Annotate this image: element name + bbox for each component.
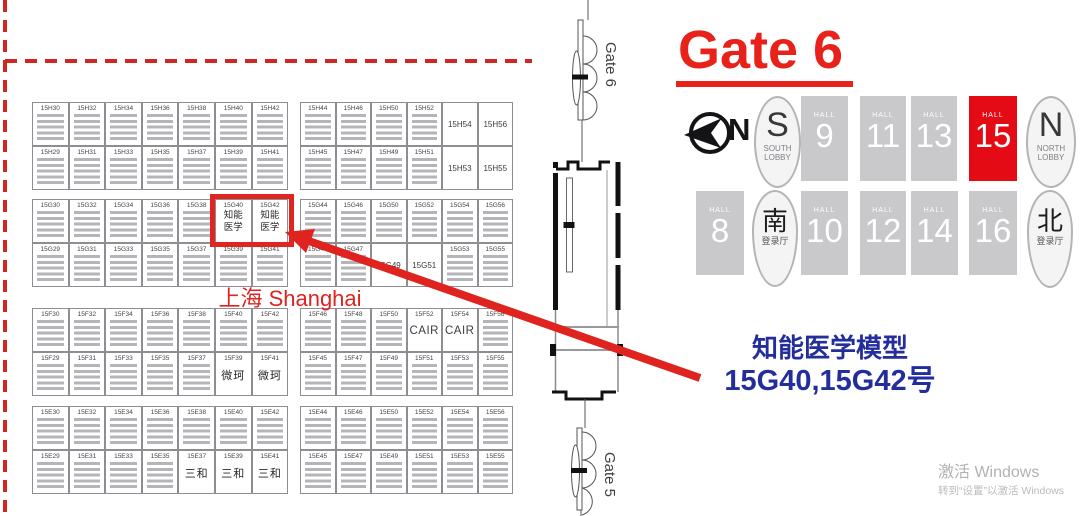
shanghai-label: 上海 Shanghai bbox=[140, 281, 440, 313]
booth-cell: 15E41三和 bbox=[252, 450, 289, 494]
south-reg-char: 南 bbox=[754, 208, 796, 234]
gate-5-door-label: Gate 5 bbox=[601, 452, 618, 497]
booth-cell: 15F31 bbox=[69, 352, 106, 396]
booth-cell: 15H52 bbox=[407, 102, 443, 146]
booth-cell: 15H39 bbox=[215, 146, 252, 190]
booth-cell: 15E49 bbox=[371, 450, 407, 494]
booth-cell: 15G29 bbox=[32, 243, 69, 287]
booth-cell: 15G52 bbox=[407, 199, 443, 243]
booth-cell: 15F32 bbox=[69, 308, 106, 352]
watermark-line2: 转到“设置”以激活 Windows bbox=[938, 484, 1064, 499]
booth-cell: 15E55 bbox=[478, 450, 514, 494]
hall-number: 12 bbox=[860, 214, 906, 249]
hall-9: HALL 9 bbox=[801, 96, 848, 181]
south-lobby-letter: S bbox=[756, 108, 799, 142]
booth-cell: 15G53 bbox=[442, 243, 478, 287]
hall-number: 16 bbox=[969, 214, 1017, 249]
booth-cell: 15H32 bbox=[69, 102, 106, 146]
gate-6-door-label: Gate 6 bbox=[602, 42, 619, 87]
north-lobby-text: NORTH LOBBY bbox=[1031, 144, 1071, 162]
booth-cell: 15F50 bbox=[371, 308, 407, 352]
booth-cell: 15E38 bbox=[178, 406, 215, 450]
booth-cell: 15F33 bbox=[105, 352, 142, 396]
hall-number: 8 bbox=[696, 214, 744, 249]
booth-cell: 15E47 bbox=[336, 450, 372, 494]
booth-cell: 15G36 bbox=[142, 199, 179, 243]
booth-cell: 15E36 bbox=[142, 406, 179, 450]
booth-cell: 15E54 bbox=[442, 406, 478, 450]
south-registration-hall: 南 登录厅 bbox=[752, 190, 798, 287]
annotation-booth-numbers: 15G40,15G42号 bbox=[680, 364, 980, 399]
booth-cell: 15F30 bbox=[32, 308, 69, 352]
booth-cell: 15F34 bbox=[105, 308, 142, 352]
booth-cell: 15F39微珂 bbox=[215, 352, 252, 396]
corridor-walls bbox=[550, 0, 623, 516]
booth-cell: 15H51 bbox=[407, 146, 443, 190]
booth-cell: 15F47 bbox=[336, 352, 372, 396]
booth-cell: 15G31 bbox=[69, 243, 106, 287]
south-lobby-text: SOUTH LOBBY bbox=[758, 144, 798, 162]
booth-cell: 15H31 bbox=[69, 146, 106, 190]
booth-cell: 15G46 bbox=[336, 199, 372, 243]
booth-cell: 15H35 bbox=[142, 146, 179, 190]
hall-number: 10 bbox=[801, 214, 848, 249]
booth-cell: 15H55 bbox=[478, 146, 514, 190]
booth-cell: 15E50 bbox=[371, 406, 407, 450]
booth-cell: 15E51 bbox=[407, 450, 443, 494]
booth-cell: 15E29 bbox=[32, 450, 69, 494]
booth-cell: 15H53 bbox=[442, 146, 478, 190]
booth-cell: 15E53 bbox=[442, 450, 478, 494]
booth-cell: 15F52CAIR bbox=[407, 308, 443, 352]
booth-cell: 15H42 bbox=[252, 102, 289, 146]
booth-cell: 15E33 bbox=[105, 450, 142, 494]
booth-cell: 15F29 bbox=[32, 352, 69, 396]
hall-number: 14 bbox=[911, 214, 958, 249]
booth-cell: 15G34 bbox=[105, 199, 142, 243]
booth-cell: 15H41 bbox=[252, 146, 289, 190]
booth-cell: 15E31 bbox=[69, 450, 106, 494]
south-reg-text: 登录厅 bbox=[755, 236, 795, 246]
booth-cell: 15F53 bbox=[442, 352, 478, 396]
hall-number: 15 bbox=[969, 119, 1017, 154]
compass-n-label: N bbox=[728, 112, 750, 148]
exhibition-floor-plan: Gate 6 Gate 5 15H3015H3215H3415H3615H381… bbox=[0, 0, 1080, 516]
booth-cell: 15E46 bbox=[336, 406, 372, 450]
hall-16: HALL 16 bbox=[969, 191, 1017, 275]
booth-cell: 15H44 bbox=[300, 102, 336, 146]
booth-cell: 15E52 bbox=[407, 406, 443, 450]
north-lobby-letter: N bbox=[1028, 108, 1074, 142]
booth-cell: 15F51 bbox=[407, 352, 443, 396]
hall-14: HALL 14 bbox=[911, 191, 958, 275]
booth-cell: 15F48 bbox=[336, 308, 372, 352]
hall-11: HALL 11 bbox=[860, 96, 906, 181]
booth-cell: 15F45 bbox=[300, 352, 336, 396]
hall-13: HALL 13 bbox=[911, 96, 957, 181]
booth-cell: 15E37三和 bbox=[178, 450, 215, 494]
booth-cell: 15H49 bbox=[371, 146, 407, 190]
north-reg-char: 北 bbox=[1029, 208, 1071, 234]
booth-cell: 15H45 bbox=[300, 146, 336, 190]
booth-cell: 15F36 bbox=[142, 308, 179, 352]
booth-cell: 15E45 bbox=[300, 450, 336, 494]
booth-cell: 15E40 bbox=[215, 406, 252, 450]
hall-8: HALL 8 bbox=[696, 191, 744, 275]
booth-cell: 15G50 bbox=[371, 199, 407, 243]
watermark-line1: 激活 Windows bbox=[938, 463, 1064, 484]
booth-cell: 15F40 bbox=[215, 308, 252, 352]
hall-15-highlighted: HALL 15 bbox=[969, 96, 1017, 181]
booth-cell: 15H29 bbox=[32, 146, 69, 190]
hall-number: 9 bbox=[801, 119, 848, 154]
booth-cell: 15G44 bbox=[300, 199, 336, 243]
north-reg-text: 登录厅 bbox=[1030, 236, 1070, 246]
booth-cell: 15G32 bbox=[69, 199, 106, 243]
booth-cell: 15H33 bbox=[105, 146, 142, 190]
booth-cell: 15H36 bbox=[142, 102, 179, 146]
hall-number: 11 bbox=[860, 119, 906, 154]
booth-cell: 15F56 bbox=[478, 308, 514, 352]
booth-cell: 15H37 bbox=[178, 146, 215, 190]
booth-cell: 15F54CAIR bbox=[442, 308, 478, 352]
booth-cell: 15F37 bbox=[178, 352, 215, 396]
booth-cell: 15F41微珂 bbox=[252, 352, 289, 396]
booth-cell: 15F55 bbox=[478, 352, 514, 396]
booth-cell: 15F35 bbox=[142, 352, 179, 396]
booth-cell: 15F38 bbox=[178, 308, 215, 352]
booth-cell: 15H47 bbox=[336, 146, 372, 190]
north-lobby: N NORTH LOBBY bbox=[1026, 96, 1076, 188]
booth-cell: 15H34 bbox=[105, 102, 142, 146]
gate6-title: Gate 6 bbox=[676, 22, 853, 87]
booth-cell: 15G56 bbox=[478, 199, 514, 243]
hall-12: HALL 12 bbox=[860, 191, 906, 275]
booth-cell: 15G55 bbox=[478, 243, 514, 287]
booth-cell: 15G33 bbox=[105, 243, 142, 287]
windows-watermark: 激活 Windows 转到“设置”以激活 Windows bbox=[938, 463, 1064, 498]
booth-cell: 15E35 bbox=[142, 450, 179, 494]
booth-cell: 15E56 bbox=[478, 406, 514, 450]
booth-cell: 15E34 bbox=[105, 406, 142, 450]
red-highlight-box bbox=[210, 194, 294, 247]
booth-cell: 15H54 bbox=[442, 102, 478, 146]
booth-cell: 15E39三和 bbox=[215, 450, 252, 494]
booth-cell: 15H50 bbox=[371, 102, 407, 146]
booth-cell: 15F49 bbox=[371, 352, 407, 396]
hall-10: HALL 10 bbox=[801, 191, 848, 275]
booth-annotation: 知能医学模型 15G40,15G42号 bbox=[680, 333, 980, 399]
booth-cell: 15H38 bbox=[178, 102, 215, 146]
booth-cell: 15E32 bbox=[69, 406, 106, 450]
booth-cell: 15F46 bbox=[300, 308, 336, 352]
booth-cell: 15E30 bbox=[32, 406, 69, 450]
booth-cell: 15H40 bbox=[215, 102, 252, 146]
south-lobby: S SOUTH LOBBY bbox=[754, 96, 801, 188]
booth-cell: 15G54 bbox=[442, 199, 478, 243]
booth-cell: 15H46 bbox=[336, 102, 372, 146]
booth-cell: 15F42 bbox=[252, 308, 289, 352]
booth-cell: 15H56 bbox=[478, 102, 514, 146]
booth-cell: 15H30 bbox=[32, 102, 69, 146]
booth-cell: 15E44 bbox=[300, 406, 336, 450]
annotation-company: 知能医学模型 bbox=[680, 333, 980, 364]
booth-cell: 15G30 bbox=[32, 199, 69, 243]
hall-number: 13 bbox=[911, 119, 957, 154]
north-registration-hall: 北 登录厅 bbox=[1027, 190, 1073, 288]
booth-cell: 15E42 bbox=[252, 406, 289, 450]
